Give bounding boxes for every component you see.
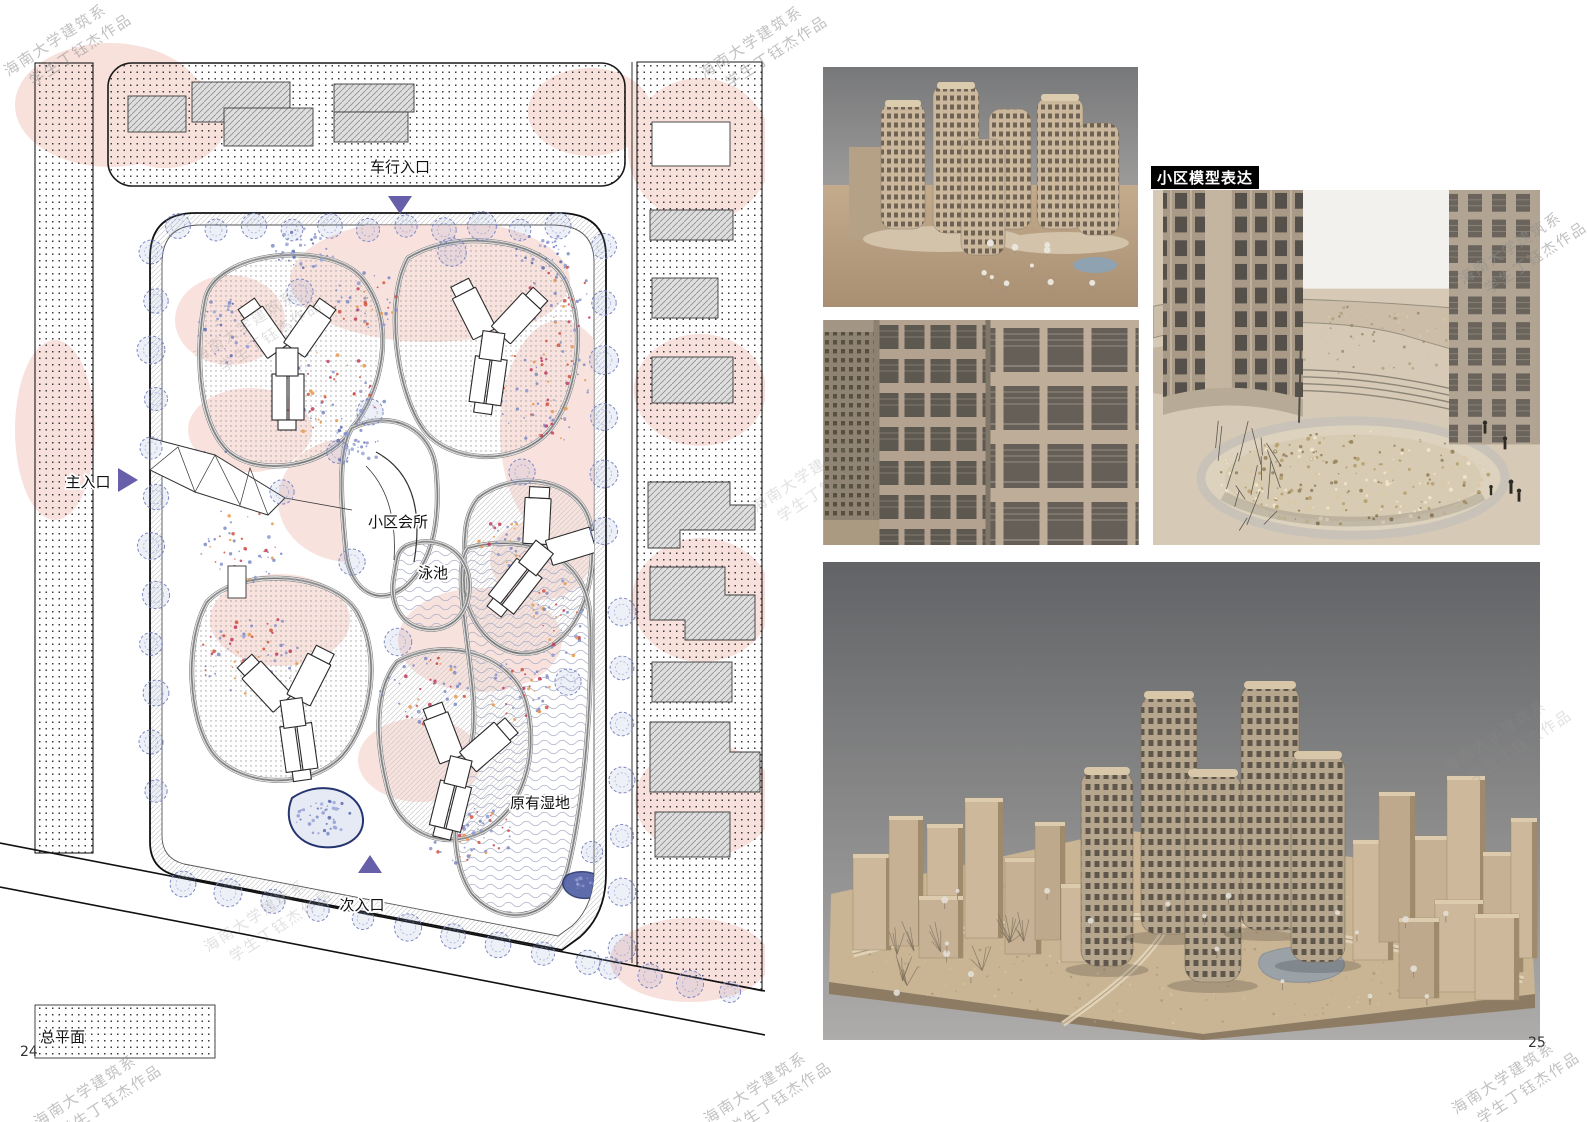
photo-model-aerial-small — [823, 67, 1138, 307]
label-main-entrance: 主入口 — [65, 473, 110, 491]
small-building — [228, 566, 246, 598]
label-clubhouse: 小区会所 — [368, 513, 428, 531]
portfolio-spread: 车行入口 主入口 小区会所 泳池 原有湿地 次入口 总平面 小区模型表达 — [0, 0, 1587, 1122]
site-plan-drawing: 车行入口 主入口 小区会所 泳池 原有湿地 次入口 总平面 — [0, 0, 765, 1122]
main-entrance-arrow-icon — [118, 468, 138, 492]
vehicle-entrance-arrow-icon — [388, 196, 412, 214]
photo-facade-closeup — [823, 320, 1139, 545]
page-number-left: 24 — [20, 1044, 38, 1060]
model-pond — [1073, 257, 1117, 273]
pond-west — [289, 788, 363, 847]
mid-facade — [880, 320, 986, 545]
label-secondary-entrance: 次入口 — [339, 896, 384, 914]
label-wetland: 原有湿地 — [510, 794, 570, 812]
photo-sunken-plaza — [1153, 190, 1540, 545]
plan-caption: 总平面 — [40, 1028, 85, 1046]
photo-model-aerial-large — [823, 562, 1540, 1040]
label-vehicle-entrance: 车行入口 — [370, 158, 430, 176]
model-section-title: 小区模型表达 — [1151, 166, 1259, 189]
label-pool: 泳池 — [418, 564, 448, 582]
plaza-tower-left — [1163, 190, 1303, 397]
foreground-facade — [991, 320, 1139, 545]
context-blocks-left — [853, 798, 1095, 962]
watermark: 海南大学建筑系学生丁钰杰作品 — [1448, 1028, 1585, 1122]
